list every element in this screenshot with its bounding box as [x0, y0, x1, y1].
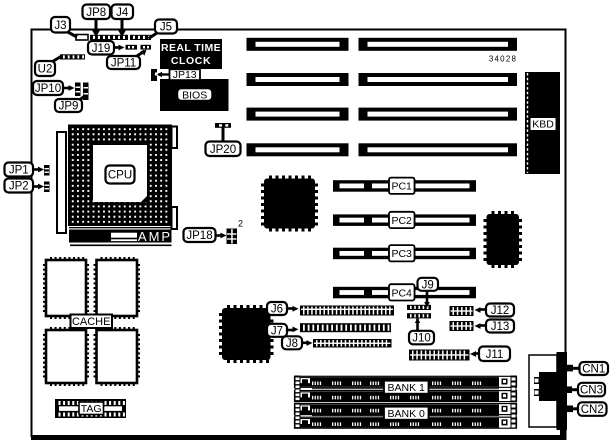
svg-text:J13: J13 — [491, 321, 510, 333]
svg-text:U2: U2 — [38, 64, 53, 76]
svg-text:CACHE: CACHE — [72, 316, 111, 328]
svg-text:JP13: JP13 — [173, 69, 197, 81]
svg-text:J9: J9 — [422, 279, 434, 291]
svg-text:JP8: JP8 — [86, 7, 106, 19]
svg-text:CN3: CN3 — [580, 385, 603, 397]
svg-text:KBD: KBD — [532, 119, 554, 131]
svg-text:34028: 34028 — [489, 55, 517, 64]
svg-text:PC2: PC2 — [391, 215, 412, 227]
svg-text:J19: J19 — [92, 43, 111, 55]
svg-text:REAL TIME: REAL TIME — [161, 42, 221, 54]
svg-text:JP1: JP1 — [9, 165, 29, 177]
svg-text:BANK 0: BANK 0 — [388, 408, 426, 420]
svg-text:J3: J3 — [54, 20, 66, 32]
svg-text:CPU: CPU — [108, 170, 132, 182]
svg-text:JP18: JP18 — [186, 230, 212, 242]
svg-text:CLOCK: CLOCK — [171, 55, 211, 67]
svg-text:J12: J12 — [491, 305, 510, 317]
svg-text:J5: J5 — [160, 22, 172, 34]
svg-text:J6: J6 — [271, 304, 283, 316]
svg-text:PC4: PC4 — [391, 287, 412, 299]
svg-text:BANK 1: BANK 1 — [388, 382, 426, 394]
svg-text:TAG: TAG — [81, 403, 102, 415]
svg-text:JP10: JP10 — [35, 83, 61, 95]
svg-text:JP2: JP2 — [9, 181, 29, 193]
svg-text:PC1: PC1 — [391, 181, 412, 193]
svg-text:JP9: JP9 — [59, 101, 79, 113]
svg-text:J10: J10 — [412, 333, 431, 345]
svg-text:PC3: PC3 — [391, 248, 412, 260]
svg-text:AMP: AMP — [138, 229, 172, 244]
svg-text:J11: J11 — [486, 349, 504, 361]
svg-text:JP11: JP11 — [111, 58, 136, 70]
svg-text:2: 2 — [238, 219, 243, 229]
svg-text:BIOS: BIOS — [182, 89, 207, 101]
svg-text:J4: J4 — [116, 7, 129, 19]
svg-text:JP20: JP20 — [210, 144, 236, 156]
svg-text:J7: J7 — [271, 325, 283, 337]
svg-text:CN2: CN2 — [581, 404, 604, 416]
svg-text:J8: J8 — [286, 338, 298, 350]
svg-text:CN1: CN1 — [582, 364, 605, 376]
